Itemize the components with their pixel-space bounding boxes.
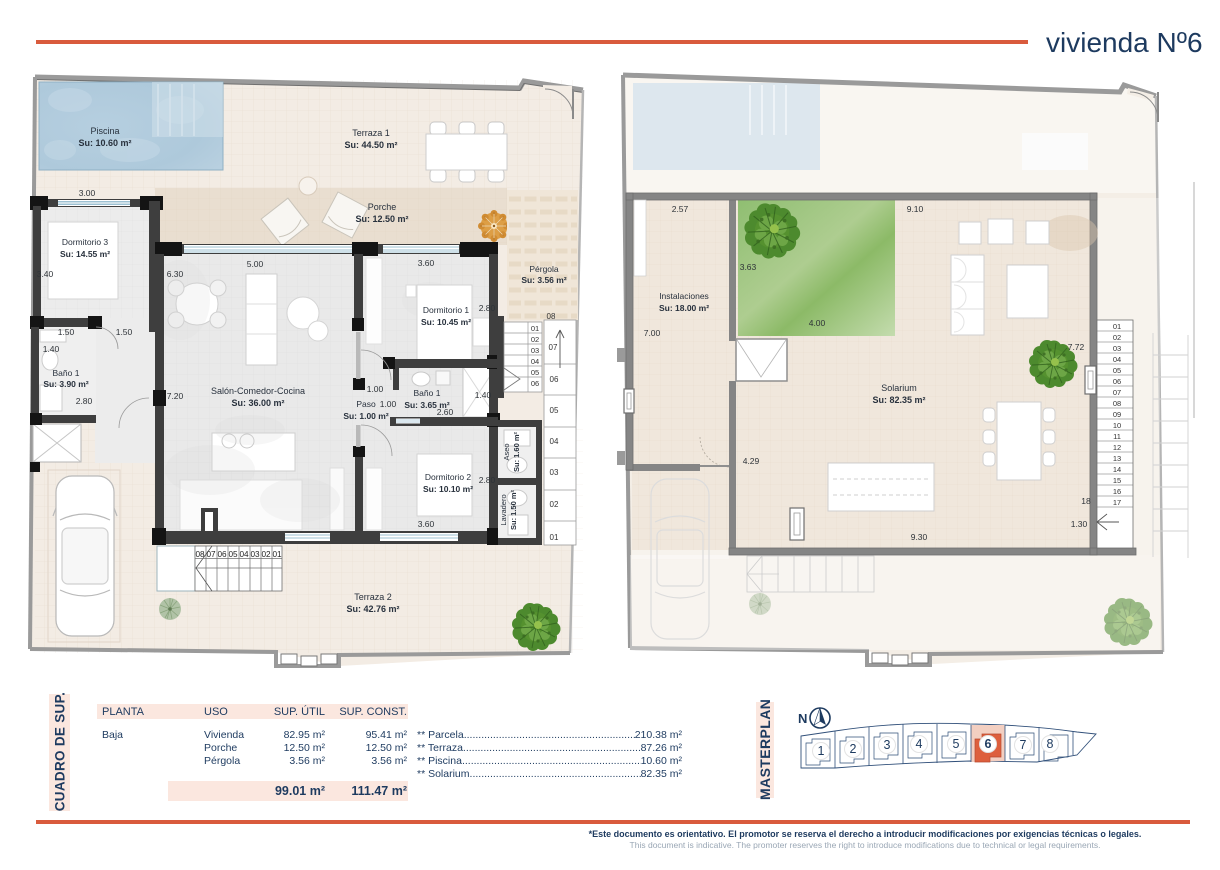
svg-text:1.50: 1.50 — [58, 327, 75, 337]
svg-text:Solarium: Solarium — [881, 383, 917, 393]
svg-text:07: 07 — [549, 343, 558, 352]
svg-text:Su: 36.00 m²: Su: 36.00 m² — [231, 398, 284, 408]
svg-text:Su: 3.56 m²: Su: 3.56 m² — [521, 275, 567, 285]
svg-text:01: 01 — [550, 533, 559, 542]
svg-text:05: 05 — [531, 368, 539, 377]
svg-text:Su: 10.60 m²: Su: 10.60 m² — [78, 138, 131, 148]
svg-text:06: 06 — [531, 379, 539, 388]
svg-text:06: 06 — [1113, 377, 1121, 386]
svg-text:03: 03 — [250, 550, 260, 559]
svg-text:1.40: 1.40 — [43, 344, 60, 354]
svg-text:Aseo: Aseo — [502, 443, 511, 460]
svg-text:9.30: 9.30 — [911, 532, 928, 542]
svg-text:07: 07 — [1113, 388, 1121, 397]
svg-text:01: 01 — [531, 324, 539, 333]
svg-text:3.60: 3.60 — [418, 519, 435, 529]
svg-text:2.80: 2.80 — [76, 396, 93, 406]
svg-text:Paso: Paso — [356, 399, 376, 409]
svg-text:3.00: 3.00 — [79, 188, 96, 198]
svg-text:02: 02 — [550, 500, 559, 509]
svg-text:01: 01 — [1113, 322, 1121, 331]
svg-text:Porche: Porche — [368, 202, 397, 212]
svg-text:02: 02 — [261, 550, 271, 559]
svg-text:Su: 12.50 m²: Su: 12.50 m² — [355, 214, 408, 224]
svg-text:Dormitorio 3: Dormitorio 3 — [62, 237, 109, 247]
svg-text:Su: 42.76 m²: Su: 42.76 m² — [346, 604, 399, 614]
svg-text:Instalaciones: Instalaciones — [659, 291, 709, 301]
svg-text:Dormitorio 1: Dormitorio 1 — [423, 305, 470, 315]
svg-text:3.40: 3.40 — [37, 269, 54, 279]
svg-text:6.30: 6.30 — [167, 269, 184, 279]
svg-text:Su: 18.00 m²: Su: 18.00 m² — [659, 303, 709, 313]
svg-text:Baño 1: Baño 1 — [414, 388, 441, 398]
svg-text:1.00: 1.00 — [380, 399, 397, 409]
svg-text:Piscina: Piscina — [90, 126, 119, 136]
svg-text:16: 16 — [1113, 487, 1121, 496]
svg-text:08: 08 — [195, 550, 205, 559]
svg-text:04: 04 — [550, 437, 559, 446]
svg-text:Terraza 2: Terraza 2 — [354, 592, 392, 602]
svg-text:7.72: 7.72 — [1068, 342, 1085, 352]
svg-text:Su: 14.55 m²: Su: 14.55 m² — [60, 249, 110, 259]
svg-text:Su: 82.35 m²: Su: 82.35 m² — [872, 395, 925, 405]
svg-text:3.60: 3.60 — [418, 258, 435, 268]
svg-text:7.00: 7.00 — [644, 328, 661, 338]
svg-text:08: 08 — [547, 312, 556, 321]
svg-text:1.50: 1.50 — [116, 327, 133, 337]
svg-text:15: 15 — [1113, 476, 1121, 485]
svg-text:Su: 10.10 m²: Su: 10.10 m² — [423, 484, 473, 494]
svg-text:Su: 44.50 m²: Su: 44.50 m² — [344, 140, 397, 150]
svg-text:06: 06 — [550, 375, 559, 384]
svg-text:02: 02 — [531, 335, 539, 344]
svg-text:1.30: 1.30 — [1071, 519, 1088, 529]
svg-text:4.29: 4.29 — [743, 456, 760, 466]
svg-text:3.63: 3.63 — [740, 262, 757, 272]
svg-text:Pérgola: Pérgola — [529, 264, 559, 274]
svg-text:13: 13 — [1113, 454, 1121, 463]
svg-text:Lavadero: Lavadero — [499, 494, 508, 525]
svg-text:09: 09 — [1113, 410, 1121, 419]
svg-text:7: 7 — [1020, 738, 1027, 752]
svg-text:03: 03 — [550, 468, 559, 477]
svg-text:Su: 3.90 m²: Su: 3.90 m² — [43, 379, 89, 389]
svg-text:04: 04 — [1113, 355, 1121, 364]
svg-text:03: 03 — [1113, 344, 1121, 353]
svg-text:5.00: 5.00 — [247, 259, 264, 269]
svg-text:3: 3 — [884, 738, 891, 752]
svg-text:12: 12 — [1113, 443, 1121, 452]
svg-text:4.00: 4.00 — [809, 318, 826, 328]
svg-text:18: 18 — [1081, 496, 1091, 506]
svg-text:Baño 1: Baño 1 — [53, 368, 80, 378]
svg-text:05: 05 — [228, 550, 238, 559]
svg-text:Su: 10.45 m²: Su: 10.45 m² — [421, 317, 471, 327]
svg-text:1: 1 — [818, 744, 825, 758]
svg-text:17: 17 — [1113, 498, 1121, 507]
svg-text:Su: 1.00 m²: Su: 1.00 m² — [343, 411, 389, 421]
svg-text:Dormitorio 2: Dormitorio 2 — [425, 472, 472, 482]
svg-text:05: 05 — [550, 406, 559, 415]
svg-text:1.40: 1.40 — [475, 390, 492, 400]
svg-text:5: 5 — [953, 737, 960, 751]
svg-text:07: 07 — [206, 550, 216, 559]
svg-text:11: 11 — [1113, 432, 1121, 441]
svg-text:02: 02 — [1113, 333, 1121, 342]
svg-text:06: 06 — [217, 550, 227, 559]
svg-text:7.20: 7.20 — [167, 391, 184, 401]
svg-text:05: 05 — [1113, 366, 1121, 375]
svg-text:4: 4 — [916, 737, 923, 751]
svg-text:Su: 1.50 m²: Su: 1.50 m² — [509, 489, 518, 530]
svg-text:04: 04 — [531, 357, 539, 366]
svg-text:N: N — [798, 711, 807, 726]
svg-text:2.80: 2.80 — [479, 475, 496, 485]
svg-text:2.80: 2.80 — [479, 303, 496, 313]
svg-text:04: 04 — [239, 550, 249, 559]
svg-text:6: 6 — [985, 737, 992, 751]
svg-text:08: 08 — [1113, 399, 1121, 408]
svg-text:01: 01 — [272, 550, 282, 559]
svg-text:14: 14 — [1113, 465, 1121, 474]
svg-text:10: 10 — [1113, 421, 1121, 430]
svg-text:Terraza 1: Terraza 1 — [352, 128, 390, 138]
svg-text:2.57: 2.57 — [672, 204, 689, 214]
svg-text:8: 8 — [1047, 737, 1054, 751]
svg-text:03: 03 — [531, 346, 539, 355]
svg-text:Salón-Comedor-Cocina: Salón-Comedor-Cocina — [211, 386, 305, 396]
svg-text:2: 2 — [850, 742, 857, 756]
svg-text:2.60: 2.60 — [437, 407, 454, 417]
svg-text:Su: 1.60 m²: Su: 1.60 m² — [512, 431, 521, 472]
svg-text:1.00: 1.00 — [367, 384, 384, 394]
svg-text:9.10: 9.10 — [907, 204, 924, 214]
